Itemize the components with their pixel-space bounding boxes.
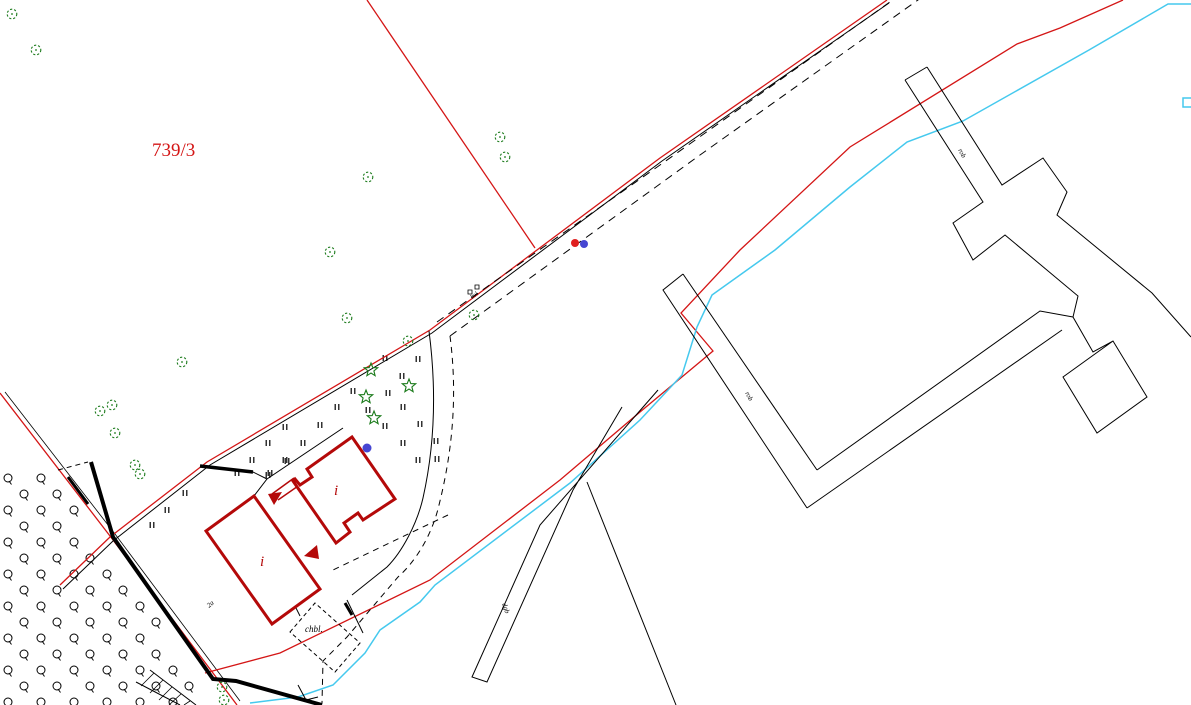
orchard-tree-icon — [103, 698, 111, 705]
red-arrow-door — [304, 545, 319, 559]
buildings — [206, 437, 395, 624]
orchard-tree-icon — [70, 666, 78, 674]
orchard-tree-icon — [20, 618, 28, 626]
ramp-rail-1 — [150, 670, 196, 705]
deciduous-tree-dot — [329, 251, 331, 253]
deciduous-tree-dot — [134, 464, 136, 466]
building-label-i-upper: i — [334, 483, 338, 499]
ramp-rung-4 — [169, 694, 181, 705]
grass-tick-icon — [383, 423, 387, 429]
orchard-tree-icon — [37, 538, 45, 546]
parcel-split-red — [367, 0, 535, 248]
shed-label: chbl. — [305, 624, 323, 634]
orchard-tree-icon — [4, 474, 12, 482]
orchard-tree-icon — [70, 634, 78, 642]
grass-tick-icon — [401, 440, 405, 446]
deciduous-tree-dot — [114, 432, 116, 434]
grass-tick-icon — [250, 457, 254, 463]
orchard-tree-icon — [136, 698, 144, 705]
orchard-tree-icon — [119, 650, 127, 658]
orchard-tree-icon — [53, 554, 61, 562]
orchard-tree-icon — [37, 698, 45, 705]
orchard-tree-icon — [20, 522, 28, 530]
conifer-tree-icon — [402, 379, 415, 392]
building-label-i-lower: i — [260, 554, 264, 570]
orchard-tree-icon — [136, 602, 144, 610]
orchard-tree-icon — [136, 666, 144, 674]
grass-tick-icon — [386, 390, 390, 396]
strip-label-rob-top: rob — [956, 147, 968, 160]
parcel-number: 739/3 — [152, 140, 195, 161]
orchard-tree-icon — [20, 554, 28, 562]
grass-tick-icon — [183, 490, 187, 496]
ramp-rung-3 — [159, 687, 172, 700]
grass-tick-icon — [418, 421, 422, 427]
survey-dots — [363, 239, 589, 453]
yard-label-2a: 2a — [205, 599, 216, 610]
deciduous-tree-dot — [367, 176, 369, 178]
orchard-tree-icon — [53, 618, 61, 626]
orchard-tree-icon — [4, 538, 12, 546]
ditch-line-south — [587, 482, 676, 705]
track-dashed-outer — [450, 0, 925, 336]
grass-tick-icon — [416, 457, 420, 463]
orchard-tree-icon — [152, 682, 160, 690]
grass-tick-icon — [435, 456, 439, 462]
deciduous-tree-dot — [181, 361, 183, 363]
grass-tick-icon — [283, 424, 287, 430]
track-dashed-inner — [437, 0, 897, 322]
grass-tick-icon — [366, 407, 370, 413]
left-boundary-fence-black — [5, 392, 240, 701]
grass-tick-icon — [351, 388, 355, 394]
grass-marks — [150, 355, 439, 528]
orchard-tree-icon — [53, 650, 61, 658]
orchard-tree-icon — [86, 650, 94, 658]
deciduous-tree-dot — [407, 340, 409, 342]
orchard-tree-icon — [20, 490, 28, 498]
grass-tick-icon — [400, 373, 404, 379]
orchard-tree-icon — [37, 506, 45, 514]
wall-thick-short — [68, 477, 88, 504]
grass-tick-icon — [401, 404, 405, 410]
deciduous-tree-dot — [111, 404, 113, 406]
orchard-tree-icon — [53, 522, 61, 530]
survey-dot-blue-road — [580, 240, 588, 248]
deciduous-tree-dot — [35, 49, 37, 51]
deciduous-tree-dot — [473, 314, 475, 316]
grass-tick-icon — [165, 507, 169, 513]
orchard-tree-icon — [103, 634, 111, 642]
survey-dot-blue-building — [363, 444, 372, 453]
sliver-label-dgb: dgb — [500, 602, 511, 615]
orchard-tree-icon — [37, 634, 45, 642]
map-canvas: 739/3iichbl.robrobdgbbol2a — [0, 0, 1191, 705]
ramp-rung-5 — [184, 701, 190, 705]
orchard-tree-icon — [4, 602, 12, 610]
orchard-tree-icon — [185, 682, 193, 690]
orchard-tree-icon — [4, 666, 12, 674]
building-upper — [293, 437, 395, 543]
grass-tick-icon — [266, 440, 270, 446]
orchard-tree-icon — [4, 698, 12, 705]
wall-thick-north — [200, 466, 253, 472]
deciduous-tree-dot — [139, 473, 141, 475]
orchard-tree-icon — [70, 506, 78, 514]
orchard-tree-icon — [70, 538, 78, 546]
orchard-tree-icon — [37, 666, 45, 674]
orchard-tree-icon — [152, 650, 160, 658]
orchard-tree-icon — [53, 490, 61, 498]
orchard-tree-icon — [169, 666, 177, 674]
field-edge-b — [807, 330, 1062, 508]
survey-dot-red — [571, 239, 579, 247]
orchard-tree-icon — [119, 586, 127, 594]
deciduous-tree-dot — [221, 686, 223, 688]
deciduous-tree-dot — [499, 136, 501, 138]
yard-dashed-diagonal — [333, 515, 448, 570]
orchard-tree-icon — [70, 602, 78, 610]
strip-mid-east — [683, 274, 817, 470]
orchard-tree-icon — [4, 634, 12, 642]
orchard-tree-icon — [4, 570, 12, 578]
field-edge-a — [817, 311, 1073, 470]
orchard-tree-icon — [86, 682, 94, 690]
orchard-tree-icon — [136, 634, 144, 642]
strip-network-east — [927, 67, 1191, 337]
grass-tick-icon — [318, 422, 322, 428]
orchard-tree-icon — [70, 698, 78, 705]
orchard-tree-icon — [103, 570, 111, 578]
deciduous-tree-dot — [346, 317, 348, 319]
orchard-tree-icon — [152, 618, 160, 626]
grass-tick-icon — [301, 440, 305, 446]
strip-network-west — [905, 80, 1147, 433]
line-work — [0, 0, 1191, 705]
orchard-tree-icon — [103, 602, 111, 610]
conifer-tree-icon — [359, 390, 372, 403]
orchard-tree-icon — [37, 474, 45, 482]
orchard-tree-icon — [53, 586, 61, 594]
grass-tick-icon — [150, 522, 154, 528]
orchard-tree-icon — [20, 682, 28, 690]
yard-outline-link — [253, 472, 267, 479]
deciduous-tree-dot — [99, 410, 101, 412]
stream-red-zigzag — [205, 0, 1123, 673]
orchard-tree-icon — [119, 682, 127, 690]
orchard-tree-icon — [37, 602, 45, 610]
left-boundary-red — [0, 393, 237, 705]
orchard-tree-icon — [53, 682, 61, 690]
orchard-tree-icon — [20, 650, 28, 658]
orchard-tree-icon — [4, 506, 12, 514]
strip-north-cap — [905, 67, 927, 80]
strip-label-rob-mid: rob — [743, 390, 755, 403]
grass-tick-icon — [335, 404, 339, 410]
orchard-tree-icon — [119, 618, 127, 626]
orchard-tree-icon — [103, 666, 111, 674]
track-label-bol: bol — [470, 291, 480, 301]
deciduous-tree-dot — [11, 13, 13, 15]
grass-tick-icon — [416, 356, 420, 362]
orchard-tree-icon — [86, 618, 94, 626]
grass-tick-icon — [434, 438, 438, 444]
cadastral-map: 739/3iichbl.robrobdgbbol2a — [0, 0, 1191, 705]
orchard-tree-icon — [86, 586, 94, 594]
orchard-tree-icon — [20, 586, 28, 594]
orchard-tree-icon — [37, 570, 45, 578]
deciduous-tree-dot — [504, 156, 506, 158]
culvert-cyan-bracket — [1183, 98, 1191, 107]
deciduous-tree-dot — [223, 699, 225, 701]
